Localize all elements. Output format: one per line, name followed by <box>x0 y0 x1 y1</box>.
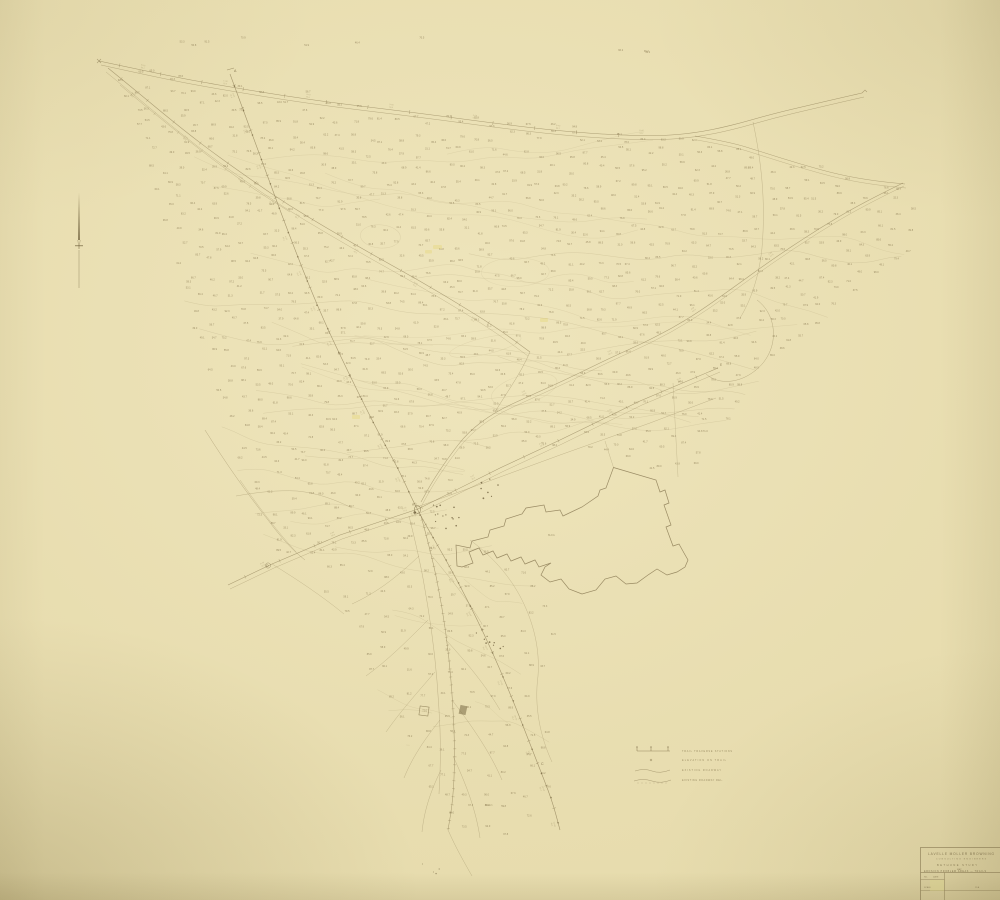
svg-text:68.0: 68.0 <box>551 270 556 273</box>
svg-text:35.9: 35.9 <box>694 386 699 389</box>
svg-text:64.9: 64.9 <box>525 695 530 698</box>
svg-text:66.5: 66.5 <box>642 312 647 315</box>
svg-text:73.3: 73.3 <box>351 542 356 545</box>
svg-text:76.2: 76.2 <box>331 182 336 185</box>
svg-text:89.9: 89.9 <box>291 512 296 515</box>
svg-text:47.6: 47.6 <box>495 171 500 174</box>
svg-text:70.1: 70.1 <box>181 92 186 95</box>
svg-text:30.8: 30.8 <box>502 303 507 306</box>
svg-text:78.6: 78.6 <box>863 197 868 200</box>
svg-text:68.7: 68.7 <box>208 146 213 149</box>
svg-text:82.6: 82.6 <box>597 319 602 322</box>
svg-text:43.7: 43.7 <box>242 396 247 399</box>
svg-text:44.0: 44.0 <box>489 350 494 353</box>
svg-text:51.5: 51.5 <box>403 348 408 351</box>
svg-text:64.0: 64.0 <box>754 358 759 361</box>
svg-text:56.0: 56.0 <box>512 418 517 421</box>
svg-text:95.8: 95.8 <box>570 156 575 159</box>
svg-text:80.6: 80.6 <box>425 229 430 232</box>
svg-text:34.9: 34.9 <box>448 613 453 616</box>
svg-text:82.6: 82.6 <box>246 168 251 171</box>
svg-text:74.5: 74.5 <box>400 300 405 303</box>
svg-text:64.2: 64.2 <box>225 245 230 248</box>
svg-text:41.2: 41.2 <box>237 285 242 288</box>
svg-text:36.2: 36.2 <box>818 210 823 213</box>
svg-text:36.8: 36.8 <box>706 334 711 337</box>
svg-text:82.7: 82.7 <box>442 417 447 420</box>
svg-text:30.9: 30.9 <box>378 410 383 413</box>
svg-text:97.0: 97.0 <box>263 121 268 124</box>
svg-text:60.1: 60.1 <box>461 668 466 671</box>
svg-text:60.9: 60.9 <box>613 371 618 374</box>
svg-text:55.5: 55.5 <box>324 591 329 594</box>
svg-text:47.7: 47.7 <box>726 177 731 180</box>
svg-text:41.8: 41.8 <box>478 232 483 235</box>
svg-text:86.8: 86.8 <box>336 309 341 312</box>
svg-text:72.8: 72.8 <box>308 436 313 439</box>
svg-text:43.6: 43.6 <box>369 488 374 491</box>
svg-text:76.2: 76.2 <box>407 735 412 738</box>
svg-text:80.8: 80.8 <box>832 265 837 268</box>
svg-text:68.2: 68.2 <box>238 457 243 460</box>
svg-text:62.1: 62.1 <box>737 263 742 266</box>
svg-text:19 A: 19 A <box>975 886 980 889</box>
svg-text:36.6: 36.6 <box>441 139 446 142</box>
svg-text:57.3: 57.3 <box>615 352 620 355</box>
svg-text:45.8: 45.8 <box>586 241 591 244</box>
svg-text:91.7: 91.7 <box>359 411 362 415</box>
svg-text:38.2: 38.2 <box>775 277 780 280</box>
svg-text:45.6: 45.6 <box>708 295 713 298</box>
svg-text:98.2: 98.2 <box>552 444 557 447</box>
svg-text:61.5: 61.5 <box>551 633 556 636</box>
svg-text:56.9: 56.9 <box>460 446 465 449</box>
svg-text:36.0: 36.0 <box>822 260 827 263</box>
svg-text:68.1: 68.1 <box>319 321 324 324</box>
svg-text:34.8: 34.8 <box>541 247 546 250</box>
svg-text:87.7: 87.7 <box>583 152 588 155</box>
svg-text:97.6: 97.6 <box>499 655 504 658</box>
svg-text:94.8: 94.8 <box>572 125 577 128</box>
svg-text:73.7: 73.7 <box>301 451 306 454</box>
svg-text:47.6: 47.6 <box>302 109 307 112</box>
svg-text:48.1: 48.1 <box>353 251 357 255</box>
svg-text:35.5: 35.5 <box>600 433 605 436</box>
svg-text:76.9: 76.9 <box>620 217 625 220</box>
svg-text:53.7: 53.7 <box>742 240 747 243</box>
svg-text:72.9: 72.9 <box>368 570 373 573</box>
svg-text:97.1: 97.1 <box>364 435 369 438</box>
svg-text:70.5: 70.5 <box>199 246 204 249</box>
svg-text:53.8: 53.8 <box>641 202 646 205</box>
svg-text:59.0: 59.0 <box>588 278 593 281</box>
svg-text:43.2: 43.2 <box>411 183 416 186</box>
svg-text:89.5: 89.5 <box>276 549 281 552</box>
svg-text:55.2: 55.2 <box>888 244 893 247</box>
svg-text:88.0: 88.0 <box>258 399 263 402</box>
svg-text:59.1: 59.1 <box>846 249 851 252</box>
svg-text:87.7: 87.7 <box>490 752 495 755</box>
svg-text:62.4: 62.4 <box>284 335 289 338</box>
svg-text:87.1: 87.1 <box>145 87 150 90</box>
svg-text:84.4: 84.4 <box>427 746 432 749</box>
svg-text:94.2: 94.2 <box>290 149 295 152</box>
svg-text:41.7: 41.7 <box>643 440 648 443</box>
svg-text:45.3: 45.3 <box>455 200 460 203</box>
svg-text:81.1: 81.1 <box>569 263 574 266</box>
svg-text:76.6: 76.6 <box>426 272 431 275</box>
svg-text:49.2: 49.2 <box>735 401 740 404</box>
svg-text:65.7: 65.7 <box>425 240 430 243</box>
svg-text:TRAIL TRAVERSE STATIONS: TRAIL TRAVERSE STATIONS <box>682 750 732 753</box>
svg-text:83.5: 83.5 <box>476 203 481 206</box>
svg-text:71.6: 71.6 <box>492 149 497 152</box>
svg-text:63.9: 63.9 <box>865 254 870 257</box>
svg-text:53.8: 53.8 <box>386 302 391 305</box>
svg-text:47.6: 47.6 <box>736 374 741 377</box>
svg-text:67.5: 67.5 <box>526 123 531 126</box>
svg-text:65.3: 65.3 <box>418 192 423 195</box>
svg-text:55.3: 55.3 <box>303 248 308 251</box>
svg-text:89.6: 89.6 <box>385 440 390 443</box>
svg-text:76.3: 76.3 <box>831 302 836 305</box>
svg-text:71.0: 71.0 <box>703 430 708 433</box>
svg-text:85.6: 85.6 <box>876 238 881 241</box>
svg-text:33.8: 33.8 <box>500 373 505 376</box>
svg-text:95.1: 95.1 <box>626 149 631 152</box>
svg-text:31.2: 31.2 <box>176 262 181 265</box>
svg-text:32.3: 32.3 <box>554 192 559 195</box>
svg-text:59.6: 59.6 <box>257 369 262 372</box>
svg-text:92.2: 92.2 <box>640 133 644 135</box>
svg-text:47.8: 47.8 <box>207 257 212 260</box>
svg-text:79.2: 79.2 <box>588 446 593 449</box>
svg-text:77.5: 77.5 <box>461 752 466 755</box>
svg-text:78.5: 78.5 <box>246 202 251 205</box>
svg-text:79.4: 79.4 <box>534 295 539 298</box>
svg-text:72.5: 72.5 <box>366 155 371 158</box>
svg-text:54.3: 54.3 <box>541 382 546 385</box>
svg-text:92.3: 92.3 <box>225 310 230 313</box>
svg-text:64.8: 64.8 <box>294 318 299 321</box>
svg-text:31.6: 31.6 <box>491 340 496 343</box>
svg-text:35.1: 35.1 <box>310 328 315 331</box>
svg-text:75.4: 75.4 <box>387 184 392 187</box>
svg-text:96.1: 96.1 <box>268 147 273 150</box>
svg-text:57.8: 57.8 <box>780 208 785 211</box>
svg-text:77.9: 77.9 <box>394 241 399 244</box>
svg-text:97.9: 97.9 <box>803 304 808 307</box>
svg-text:59.9: 59.9 <box>396 382 401 385</box>
svg-text:65.7: 65.7 <box>805 241 810 244</box>
svg-text:90.9: 90.9 <box>214 217 219 220</box>
svg-text:92.6: 92.6 <box>398 372 403 375</box>
svg-text:95.1: 95.1 <box>279 365 284 368</box>
svg-text:50.9: 50.9 <box>381 631 386 634</box>
svg-text:51.7: 51.7 <box>283 101 288 104</box>
svg-text:65.6: 65.6 <box>455 247 460 250</box>
svg-text:70.7: 70.7 <box>291 372 296 375</box>
svg-text:38.8: 38.8 <box>426 730 431 733</box>
svg-text:45.0: 45.0 <box>536 436 541 439</box>
svg-text:82.0: 82.0 <box>223 95 228 98</box>
svg-text:31.4: 31.4 <box>569 384 574 387</box>
svg-text:95.4: 95.4 <box>431 141 436 144</box>
svg-text:44.8: 44.8 <box>640 228 645 231</box>
svg-text:80.2: 80.2 <box>501 771 506 774</box>
svg-text:32.4: 32.4 <box>672 193 677 196</box>
svg-text:44.4: 44.4 <box>770 232 775 235</box>
svg-text:39.9: 39.9 <box>408 535 413 538</box>
svg-text:68.0: 68.0 <box>457 280 462 283</box>
svg-text:86.9: 86.9 <box>419 352 424 355</box>
svg-text:38.6: 38.6 <box>780 347 785 350</box>
svg-text:60.9: 60.9 <box>694 180 699 183</box>
svg-text:53.0: 53.0 <box>607 349 611 352</box>
svg-text:93.7: 93.7 <box>171 90 176 93</box>
svg-text:56.8: 56.8 <box>596 358 601 361</box>
svg-text:79.4: 79.4 <box>894 257 899 260</box>
svg-text:63.2: 63.2 <box>521 389 525 392</box>
svg-text:75.0: 75.0 <box>770 188 775 191</box>
svg-text:57.9: 57.9 <box>216 249 221 252</box>
svg-text:85.9: 85.9 <box>367 653 372 656</box>
svg-text:76.6: 76.6 <box>884 186 889 189</box>
svg-text:45.4: 45.4 <box>337 474 342 477</box>
svg-text:50.6: 50.6 <box>688 401 693 404</box>
svg-text:43.5: 43.5 <box>396 521 401 524</box>
svg-text:88.4: 88.4 <box>334 506 339 509</box>
svg-text:35.9: 35.9 <box>181 115 186 118</box>
svg-text:98.1: 98.1 <box>273 514 278 517</box>
svg-text:52.6: 52.6 <box>224 192 229 195</box>
svg-text:66.8: 66.8 <box>494 225 499 228</box>
svg-text:44.7: 44.7 <box>488 733 493 736</box>
svg-text:95.2: 95.2 <box>642 169 647 172</box>
svg-text:90.2: 90.2 <box>460 165 465 168</box>
svg-text:41.4: 41.4 <box>396 226 401 229</box>
svg-text:47.4: 47.4 <box>304 312 309 315</box>
svg-text:69.5: 69.5 <box>381 371 386 374</box>
svg-text:98.1: 98.1 <box>306 372 311 375</box>
svg-text:47.7: 47.7 <box>369 193 374 196</box>
svg-text:43.0: 43.0 <box>277 101 282 104</box>
svg-text:42.3: 42.3 <box>790 166 795 169</box>
svg-text:73.6: 73.6 <box>551 254 556 257</box>
svg-text:58.3: 58.3 <box>804 230 809 233</box>
svg-text:35.0: 35.0 <box>169 203 174 206</box>
svg-text:38.9: 38.9 <box>331 167 336 170</box>
svg-text:63.2: 63.2 <box>661 139 666 142</box>
svg-text:89.8: 89.8 <box>632 184 637 187</box>
svg-text:84.8: 84.8 <box>245 424 250 427</box>
svg-text:89.7: 89.7 <box>500 616 505 619</box>
svg-text:77.1: 77.1 <box>440 774 445 777</box>
svg-text:43.6: 43.6 <box>161 126 166 129</box>
svg-text:72.6: 72.6 <box>527 815 532 818</box>
svg-text:75.7: 75.7 <box>455 317 460 320</box>
svg-text:90.7: 90.7 <box>483 625 488 628</box>
svg-text:91.5: 91.5 <box>205 41 210 44</box>
svg-text:55.9: 55.9 <box>429 260 434 263</box>
svg-text:49.2: 49.2 <box>645 51 650 54</box>
svg-text:42.1: 42.1 <box>790 262 795 265</box>
svg-text:40.6: 40.6 <box>733 337 738 340</box>
svg-text:90.7: 90.7 <box>426 415 431 418</box>
svg-text:49.5: 49.5 <box>770 287 775 290</box>
svg-text:42.3: 42.3 <box>215 100 220 103</box>
svg-text:50.2: 50.2 <box>579 198 584 201</box>
svg-text:72.7: 72.7 <box>348 179 353 182</box>
svg-text:31.1: 31.1 <box>425 148 430 151</box>
svg-text:62.0: 62.0 <box>332 418 337 421</box>
svg-text:76.7: 76.7 <box>493 301 498 304</box>
svg-text:88.9: 88.9 <box>743 230 748 233</box>
svg-text:57.7: 57.7 <box>137 123 142 126</box>
svg-text:63.1: 63.1 <box>141 67 145 70</box>
svg-text:64.5: 64.5 <box>208 368 213 371</box>
svg-text:68.0: 68.0 <box>403 336 408 339</box>
svg-text:33.4: 33.4 <box>296 272 299 276</box>
svg-text:48.7: 48.7 <box>445 794 450 797</box>
svg-text:56.2: 56.2 <box>450 730 455 733</box>
svg-text:84.3: 84.3 <box>751 246 756 249</box>
svg-text:89.2: 89.2 <box>389 695 394 698</box>
svg-text:94.1: 94.1 <box>478 396 483 399</box>
svg-text:86.9: 86.9 <box>628 386 633 389</box>
svg-text:57.1: 57.1 <box>341 331 346 334</box>
svg-text:85.5: 85.5 <box>274 172 279 175</box>
svg-text:96.0: 96.0 <box>508 210 513 213</box>
svg-text:97.7: 97.7 <box>416 156 421 159</box>
svg-text:44.7: 44.7 <box>489 196 494 199</box>
svg-text:62.2: 62.2 <box>709 352 714 355</box>
svg-text:50.2: 50.2 <box>662 163 667 166</box>
svg-text:71.0: 71.0 <box>846 280 851 283</box>
svg-text:40.3: 40.3 <box>689 194 694 197</box>
svg-text:59.1: 59.1 <box>343 596 348 599</box>
svg-text:59.8: 59.8 <box>361 322 366 325</box>
svg-text:98.0: 98.0 <box>842 233 847 236</box>
svg-text:66.2: 66.2 <box>618 49 623 52</box>
svg-text:32.3: 32.3 <box>893 196 898 199</box>
svg-text:83.7: 83.7 <box>195 254 200 257</box>
svg-text:36.3: 36.3 <box>338 395 343 398</box>
svg-text:69.4: 69.4 <box>262 418 267 421</box>
svg-text:82.4: 82.4 <box>299 381 304 384</box>
svg-text:91.8: 91.8 <box>324 463 329 466</box>
svg-text:65.5: 65.5 <box>306 96 310 99</box>
svg-text:86.5: 86.5 <box>556 322 561 325</box>
svg-text:50.1: 50.1 <box>423 304 428 307</box>
svg-text:82.6: 82.6 <box>316 356 321 359</box>
svg-text:79.3: 79.3 <box>601 308 606 311</box>
svg-text:30.5: 30.5 <box>285 177 290 180</box>
svg-text:42.8: 42.8 <box>501 288 506 291</box>
svg-text:65.0: 65.0 <box>387 554 392 557</box>
svg-text:EROSION PROBLEM AREAS — TRAILS: EROSION PROBLEM AREAS — TRAILS <box>924 870 986 873</box>
svg-text:31.7: 31.7 <box>260 291 265 294</box>
svg-text:73.5: 73.5 <box>462 825 467 828</box>
svg-text:66.6: 66.6 <box>209 138 214 141</box>
svg-text:86.0: 86.0 <box>768 251 772 255</box>
svg-text:60.1: 60.1 <box>155 188 160 191</box>
svg-text:71.8: 71.8 <box>477 265 482 268</box>
svg-text:61.9: 61.9 <box>414 321 419 324</box>
svg-text:40.9: 40.9 <box>177 227 182 230</box>
svg-text:87.1: 87.1 <box>461 398 466 401</box>
svg-text:53.5: 53.5 <box>256 383 261 386</box>
svg-text:73.7: 73.7 <box>718 233 723 236</box>
svg-text:79.5: 79.5 <box>345 610 350 613</box>
svg-text:41.4: 41.4 <box>416 167 421 170</box>
svg-text:39.7: 39.7 <box>451 593 456 596</box>
svg-text:61.8: 61.8 <box>363 368 368 371</box>
svg-text:68.3: 68.3 <box>612 285 617 288</box>
svg-text:55.7: 55.7 <box>488 288 493 291</box>
svg-text:66.7: 66.7 <box>191 277 196 280</box>
svg-text:51.3: 51.3 <box>735 195 740 198</box>
svg-text:76.3: 76.3 <box>371 225 376 228</box>
svg-text:59.3: 59.3 <box>186 280 191 283</box>
svg-text:52.9: 52.9 <box>418 487 423 490</box>
svg-text:71.0: 71.0 <box>676 295 681 298</box>
svg-text:54.7: 54.7 <box>238 242 243 245</box>
svg-text:70.8: 70.8 <box>563 324 568 327</box>
svg-text:40.9: 40.9 <box>457 412 462 415</box>
svg-text:33.0: 33.0 <box>238 276 243 279</box>
svg-text:32.8: 32.8 <box>728 324 733 327</box>
svg-text:43.8: 43.8 <box>675 463 680 466</box>
svg-text:58.4: 58.4 <box>675 279 680 282</box>
svg-text:47.8: 47.8 <box>441 186 446 189</box>
svg-text:56.8: 56.8 <box>351 134 356 137</box>
svg-text:34.8: 34.8 <box>223 397 228 400</box>
svg-text:88.9: 88.9 <box>837 192 842 195</box>
svg-text:56.6: 56.6 <box>630 242 635 245</box>
svg-text:42.9: 42.9 <box>384 336 389 339</box>
svg-text:96.4: 96.4 <box>292 228 297 231</box>
svg-text:78.3: 78.3 <box>428 596 433 599</box>
svg-text:46.0: 46.0 <box>331 492 336 495</box>
svg-text:65.0: 65.0 <box>501 635 506 638</box>
svg-text:EXISTING ROADWAY REL.: EXISTING ROADWAY REL. <box>682 779 723 782</box>
svg-text:85.6: 85.6 <box>626 271 631 274</box>
svg-text:92.3: 92.3 <box>828 281 833 284</box>
svg-text:80.4: 80.4 <box>363 395 368 398</box>
svg-text:73.1: 73.1 <box>678 339 683 342</box>
svg-text:35.7: 35.7 <box>323 309 328 312</box>
svg-text:74.9: 74.9 <box>365 358 370 361</box>
svg-text:77.8: 77.8 <box>681 214 686 217</box>
svg-text:66.5: 66.5 <box>348 527 353 530</box>
svg-text:39.8: 39.8 <box>465 613 468 617</box>
svg-text:88.5: 88.5 <box>598 241 603 244</box>
svg-text:55.1: 55.1 <box>741 305 746 308</box>
svg-text:92.3: 92.3 <box>469 634 474 637</box>
svg-text:51.0: 51.0 <box>356 224 361 227</box>
svg-text:40.4: 40.4 <box>427 215 432 218</box>
svg-text:81.4: 81.4 <box>720 341 725 344</box>
svg-text:46.3: 46.3 <box>676 372 681 375</box>
svg-text:96.0: 96.0 <box>484 794 489 797</box>
svg-text:71.1: 71.1 <box>146 137 151 140</box>
svg-text:70.0: 70.0 <box>614 443 619 446</box>
svg-text:82.5: 82.5 <box>659 304 664 307</box>
svg-text:91.9: 91.9 <box>644 357 649 360</box>
svg-text:62.3: 62.3 <box>510 131 515 134</box>
svg-text:69.2: 69.2 <box>506 672 511 675</box>
